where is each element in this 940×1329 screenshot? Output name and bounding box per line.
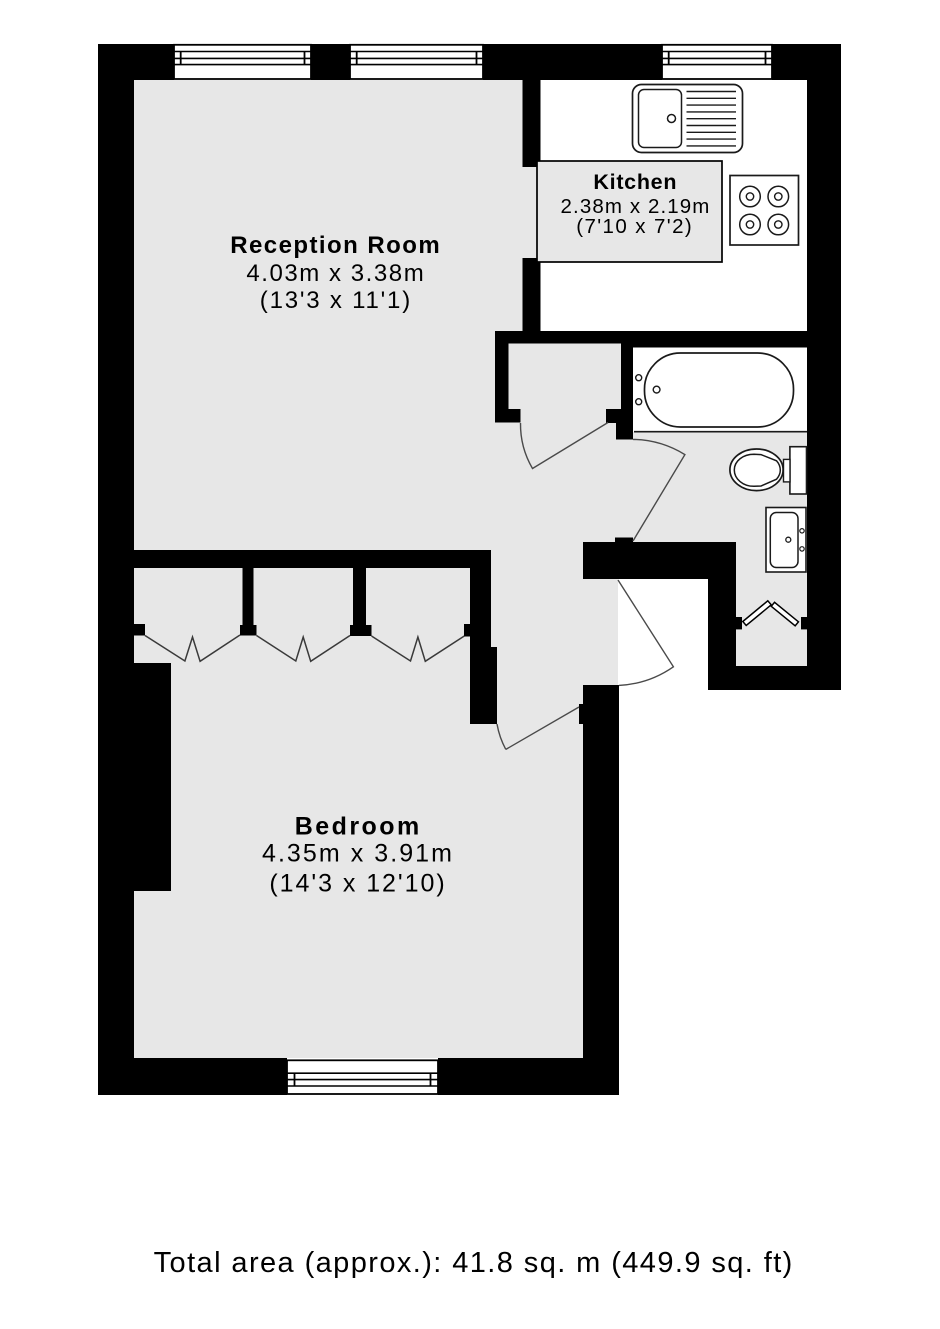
svg-text:Total area (approx.): 41.8 sq.: Total area (approx.): 41.8 sq. m (449.9 … [154, 1247, 794, 1279]
svg-text:4.35m x 3.91m: 4.35m x 3.91m [262, 840, 454, 868]
svg-text:Reception Room: Reception Room [230, 232, 441, 259]
svg-text:Bedroom: Bedroom [295, 813, 422, 841]
svg-text:4.03m x 3.38m: 4.03m x 3.38m [246, 260, 425, 287]
svg-text:Kitchen: Kitchen [593, 170, 677, 194]
svg-text:(13'3 x 11'1): (13'3 x 11'1) [260, 287, 412, 314]
svg-text:(7'10 x 7'2): (7'10 x 7'2) [576, 215, 693, 238]
svg-text:(14'3 x 12'10): (14'3 x 12'10) [269, 870, 446, 898]
